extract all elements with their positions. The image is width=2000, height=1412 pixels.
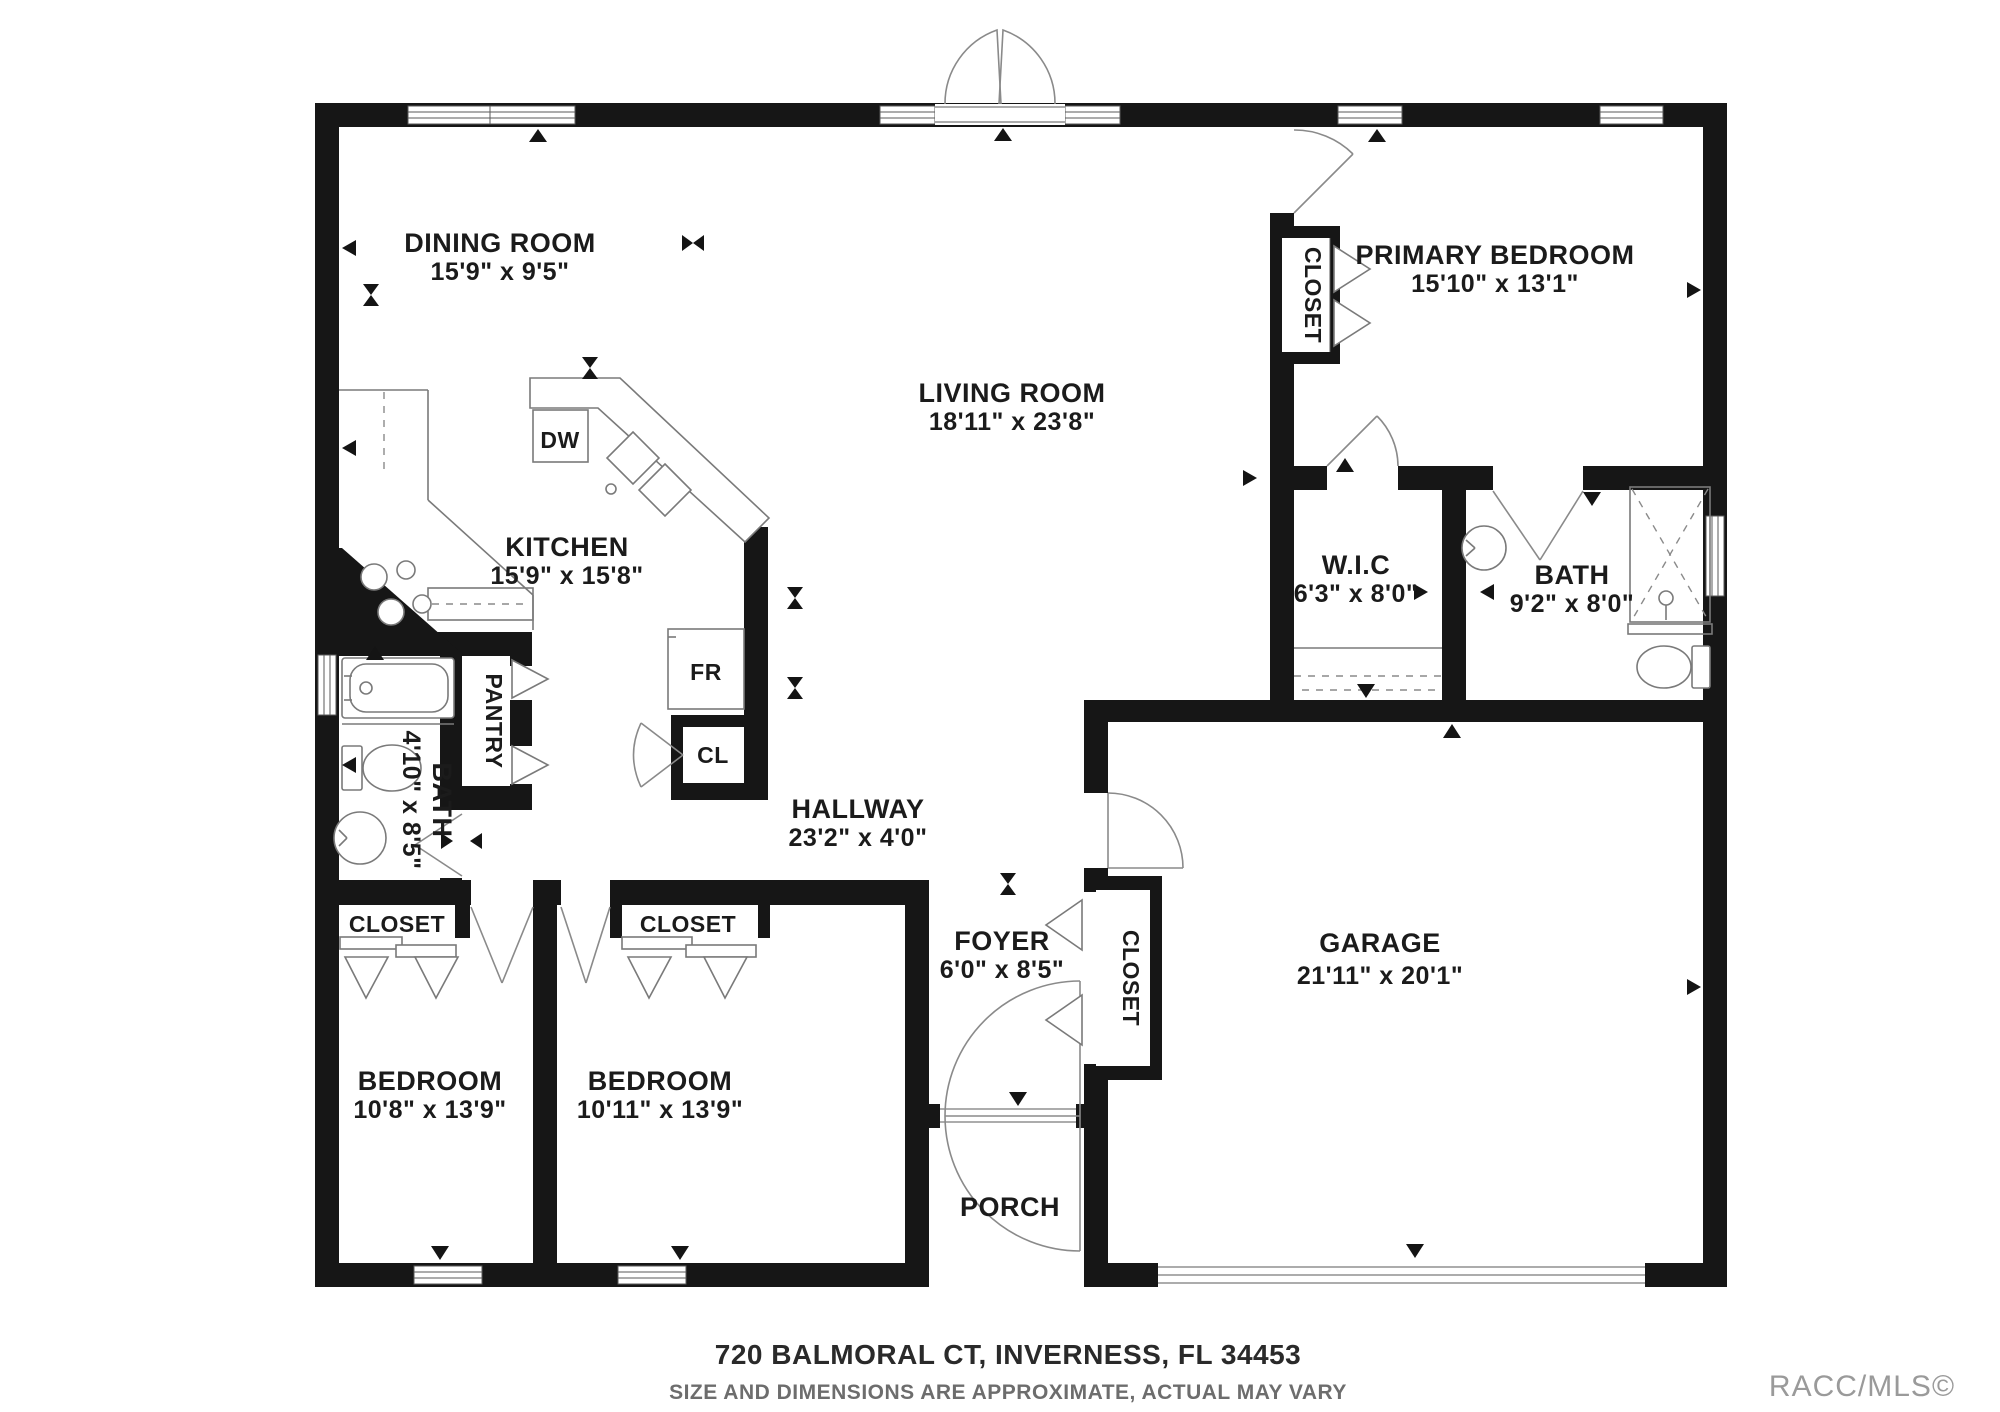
footer: 720 BALMORAL CT, INVERNESS, FL 34453 SIZ… xyxy=(669,1339,1955,1404)
wall-arrow xyxy=(1687,282,1701,298)
wall-tick xyxy=(1009,1092,1027,1106)
window-bedroom-b xyxy=(618,1266,686,1284)
kitchen-label: KITCHEN xyxy=(505,532,629,562)
hall-bath-label: BATH xyxy=(427,763,457,838)
wic-dims: 6'3" x 8'0" xyxy=(1294,580,1419,608)
hallway-label: HALLWAY xyxy=(791,794,924,824)
entry-double-door xyxy=(935,30,1065,125)
pedestal-sink xyxy=(1462,526,1506,570)
wall-tick xyxy=(994,128,1012,141)
hall-bath-dims: 4'10" x 8'5" xyxy=(397,731,425,870)
window-primary-1 xyxy=(1338,106,1402,124)
disclaimer-text: SIZE AND DIMENSIONS ARE APPROXIMATE, ACT… xyxy=(669,1381,1347,1404)
closet-a-label: CLOSET xyxy=(349,911,445,937)
foyer-closet-label: CLOSET xyxy=(1118,930,1144,1026)
bedroom-b-door-swing xyxy=(561,907,610,983)
hourglass-marker xyxy=(582,357,598,379)
dw-label: DW xyxy=(540,427,579,453)
window-primary-bath xyxy=(1706,516,1724,596)
window-hall-bath xyxy=(318,655,336,715)
foyer-dims: 6'0" x 8'5" xyxy=(940,956,1065,984)
hourglass-marker-h xyxy=(682,235,704,251)
wic-shelving xyxy=(1294,648,1442,690)
watermark-text: RACC/MLS© xyxy=(1769,1370,1955,1403)
wall-arrow xyxy=(470,833,482,849)
living-room-dims: 18'11" x 23'8" xyxy=(929,408,1095,436)
window-bedroom-a xyxy=(414,1266,482,1284)
primary-bath-label: BATH xyxy=(1535,560,1610,590)
primary-bath-dims: 9'2" x 8'0" xyxy=(1510,590,1635,618)
wall-tick xyxy=(1368,129,1386,142)
dining-room-label: DINING ROOM xyxy=(404,228,596,258)
living-room-label: LIVING ROOM xyxy=(919,378,1106,408)
garage-label: GARAGE xyxy=(1319,928,1441,958)
window-primary-2 xyxy=(1600,106,1663,124)
wic-door-swing xyxy=(1327,416,1398,466)
wall-tick xyxy=(431,1246,449,1260)
wall-arrow xyxy=(342,240,356,256)
hourglass-marker xyxy=(363,284,379,306)
kitchen-island xyxy=(530,378,769,542)
address-text: 720 BALMORAL CT, INVERNESS, FL 34453 xyxy=(715,1339,1301,1370)
toilet-primary-bath xyxy=(1637,646,1710,688)
wall-tick xyxy=(1406,1244,1424,1258)
shower xyxy=(1628,487,1712,634)
closet-b-sliding-doors xyxy=(622,937,756,998)
garage-service-door-swing xyxy=(1108,793,1183,868)
closet-a-sliding-doors xyxy=(340,937,458,998)
dining-room-dims: 15'9" x 9'5" xyxy=(431,258,570,286)
wall-arrow xyxy=(1480,584,1494,600)
wall-arrow xyxy=(1687,979,1701,995)
wall-tick xyxy=(1443,724,1461,738)
primary-closet-label: CLOSET xyxy=(1300,247,1326,343)
primary-bedroom-label: PRIMARY BEDROOM xyxy=(1355,240,1634,270)
fr-label: FR xyxy=(690,659,722,685)
hallway-dims: 23'2" x 4'0" xyxy=(789,824,928,852)
foyer-label: FOYER xyxy=(954,926,1050,956)
entry-sidelite-right xyxy=(1065,106,1120,124)
floor-plan-page: DINING ROOM 15'9" x 9'5" KITCHEN 15'9" x… xyxy=(0,0,2000,1412)
door-swings xyxy=(340,130,1583,1251)
primary-entry-swing xyxy=(1294,130,1353,213)
garage-dims: 21'11" x 20'1" xyxy=(1297,962,1463,990)
wall-arrow xyxy=(1243,470,1257,486)
bedroom-b-dims: 10'11" x 13'9" xyxy=(577,1096,743,1124)
floor-plan-drawing: DINING ROOM 15'9" x 9'5" KITCHEN 15'9" x… xyxy=(0,0,2000,1412)
wall-tick xyxy=(1583,492,1601,506)
entry-sidelite-left xyxy=(880,106,935,124)
porch-label: PORCH xyxy=(960,1192,1060,1222)
wall-tick xyxy=(671,1246,689,1260)
bedroom-a-door-swing xyxy=(471,907,533,983)
cl-label: CL xyxy=(697,742,729,768)
hourglass-marker xyxy=(1000,873,1016,895)
hourglass-marker xyxy=(787,587,803,609)
primary-bedroom-dims: 15'10" x 13'1" xyxy=(1411,270,1579,298)
wall-tick xyxy=(1357,684,1375,698)
kitchen-dims: 15'9" x 15'8" xyxy=(490,562,643,590)
wall-tick xyxy=(1336,458,1354,472)
bedroom-b-label: BEDROOM xyxy=(588,1066,733,1096)
wall-arrow xyxy=(342,440,356,456)
pantry-label: PANTRY xyxy=(481,674,507,769)
bedroom-a-label: BEDROOM xyxy=(358,1066,503,1096)
wic-label: W.I.C xyxy=(1322,550,1391,580)
closet-b-label: CLOSET xyxy=(640,911,736,937)
sink-hall-bath xyxy=(334,812,386,864)
hourglass-marker xyxy=(787,677,803,699)
bedroom-a-dims: 10'8" x 13'9" xyxy=(353,1096,506,1124)
wall-tick xyxy=(529,129,547,142)
garage-door xyxy=(1158,1263,1645,1287)
window-dining xyxy=(408,106,575,124)
bathtub xyxy=(342,658,454,718)
